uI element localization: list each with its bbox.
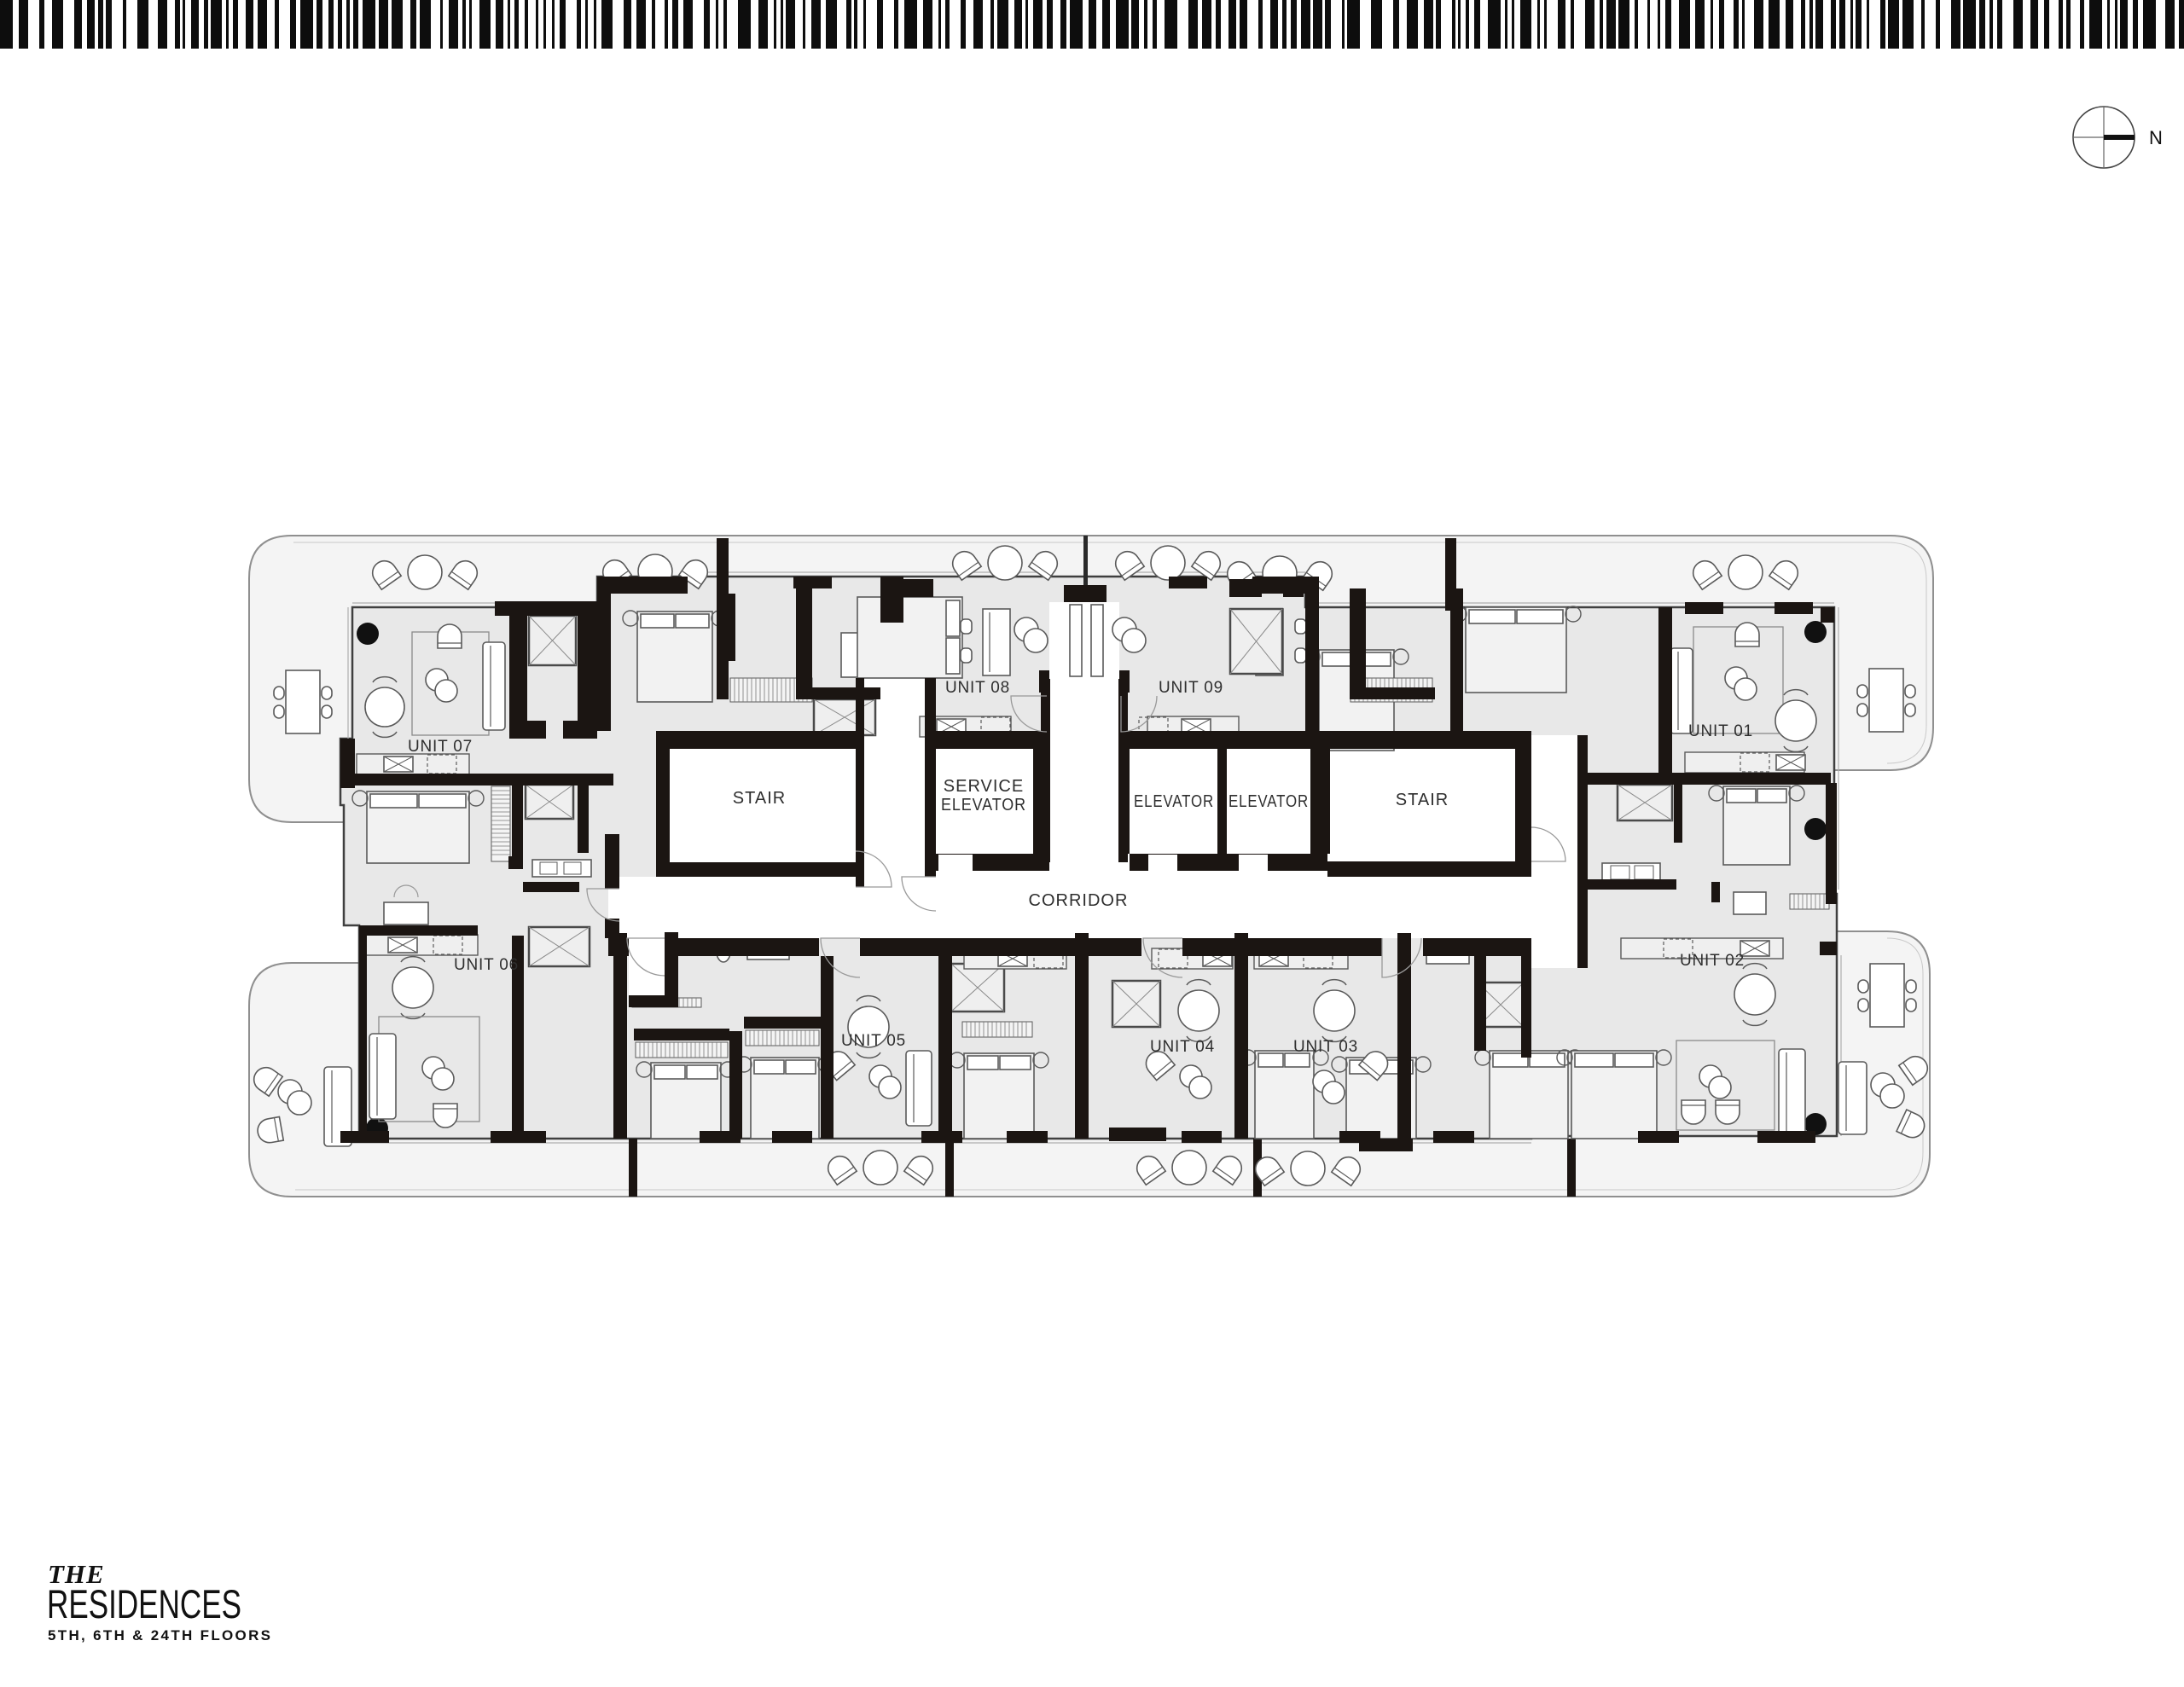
svg-text:N: N	[2149, 127, 2163, 148]
svg-text:UNIT 07: UNIT 07	[408, 738, 473, 756]
svg-text:UNIT 05: UNIT 05	[841, 1032, 906, 1050]
svg-text:STAIR: STAIR	[733, 789, 786, 808]
svg-text:UNIT 01: UNIT 01	[1688, 722, 1753, 740]
svg-text:UNIT 03: UNIT 03	[1293, 1038, 1358, 1056]
svg-text:STAIR: STAIR	[1396, 791, 1449, 809]
svg-text:RESIDENCES: RESIDENCES	[47, 1581, 241, 1626]
svg-text:ELEVATOR: ELEVATOR	[1134, 792, 1214, 811]
svg-text:UNIT 02: UNIT 02	[1680, 952, 1745, 970]
svg-text:UNIT 06: UNIT 06	[454, 956, 519, 974]
svg-text:UNIT 09: UNIT 09	[1159, 679, 1223, 697]
svg-text:ELEVATOR: ELEVATOR	[941, 796, 1026, 815]
svg-text:CORRIDOR: CORRIDOR	[1029, 891, 1129, 910]
svg-text:ELEVATOR: ELEVATOR	[1228, 792, 1309, 811]
svg-text:UNIT 04: UNIT 04	[1150, 1038, 1215, 1056]
svg-text:SERVICE: SERVICE	[944, 777, 1024, 796]
svg-text:UNIT 08: UNIT 08	[945, 679, 1010, 697]
